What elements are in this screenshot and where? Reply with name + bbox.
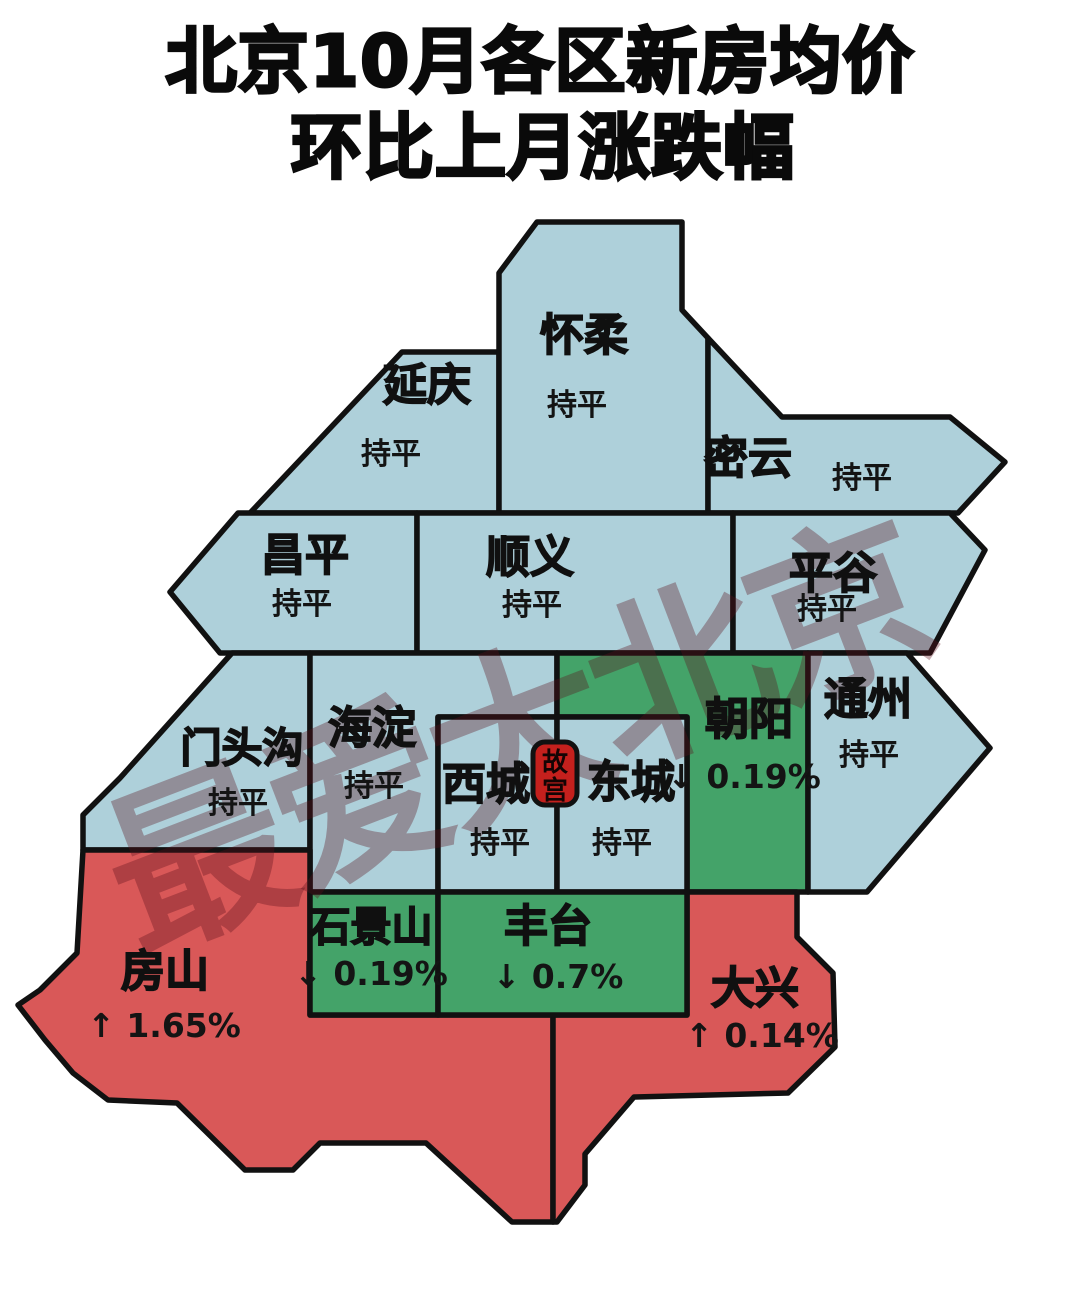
district-chaoyang-name: 朝阳	[705, 694, 793, 745]
district-fengtai-value: ↓ 0.7%	[493, 957, 624, 996]
page-title-line1: 北京10月各区新房均价	[166, 20, 915, 103]
district-fangshan-name: 房山	[121, 946, 209, 997]
forbidden-city-char-bottom: 宫	[542, 775, 568, 806]
district-chaoyang-value: ↓ 0.19%	[667, 757, 821, 796]
district-shijingshan-name: 石景山	[310, 903, 433, 951]
district-huairou	[499, 222, 708, 513]
forbidden-city-badge: 故 宫	[533, 742, 577, 806]
district-haidian-name: 海淀	[328, 703, 416, 754]
forbidden-city-char-top: 故	[542, 748, 568, 778]
district-fangshan-value: ↑ 1.65%	[87, 1006, 241, 1045]
district-miyun-name: 密云	[704, 433, 792, 484]
page-title-line2: 环比上月涨跌幅	[291, 106, 795, 189]
district-mentougou-name: 门头沟	[181, 724, 304, 772]
district-fengtai-name: 丰台	[504, 901, 592, 952]
district-daxing-value: ↑ 0.14%	[685, 1016, 839, 1055]
district-daxing-name: 大兴	[711, 963, 799, 1014]
district-huairou-name: 怀柔	[540, 310, 628, 361]
district-changping-name: 昌平	[261, 530, 349, 581]
district-haidian-value: 持平	[344, 769, 404, 804]
district-miyun-value: 持平	[832, 461, 892, 496]
district-xicheng-name: 西城	[442, 759, 530, 810]
district-mentougou-value: 持平	[208, 786, 268, 821]
district-tongzhou-value: 持平	[839, 738, 899, 773]
district-yanqing-name: 延庆	[383, 360, 471, 411]
beijing-price-map: 北京10月各区新房均价 环比上月涨跌幅	[0, 0, 1080, 1302]
district-changping-value: 持平	[272, 587, 332, 622]
district-yanqing-value: 持平	[361, 437, 421, 472]
district-huairou-shape	[499, 222, 708, 513]
district-dongcheng-name: 东城	[587, 757, 675, 808]
district-shunyi-value: 持平	[502, 588, 562, 623]
district-xicheng-value: 持平	[470, 826, 530, 861]
district-shijingshan-value: ↓ 0.19%	[294, 954, 448, 993]
district-huairou-value: 持平	[547, 388, 607, 423]
infographic-page: 北京10月各区新房均价 环比上月涨跌幅	[0, 0, 1080, 1302]
district-dongcheng-value: 持平	[592, 826, 652, 861]
district-shunyi-name: 顺义	[486, 532, 574, 583]
district-tongzhou-name: 通州	[824, 674, 912, 725]
district-pinggu-value: 持平	[797, 592, 857, 627]
